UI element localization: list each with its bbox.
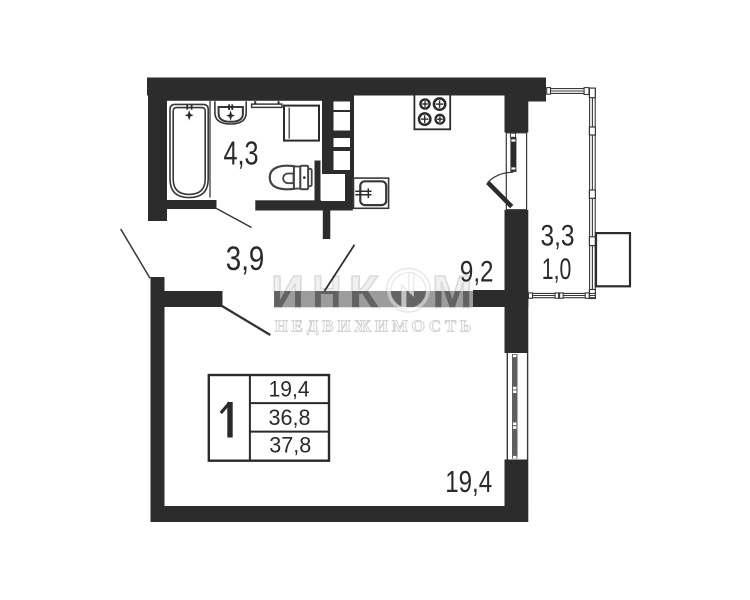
svg-text:3,3: 3,3	[541, 220, 575, 253]
svg-text:37,8: 37,8	[269, 432, 311, 457]
svg-text:19,4: 19,4	[269, 377, 310, 402]
svg-text:9,2: 9,2	[460, 256, 494, 289]
svg-text:3,9: 3,9	[226, 240, 264, 278]
svg-text:19,4: 19,4	[445, 465, 492, 499]
svg-text:4,3: 4,3	[224, 134, 259, 171]
svg-text:1,0: 1,0	[542, 253, 572, 286]
svg-text:36,8: 36,8	[269, 405, 311, 430]
